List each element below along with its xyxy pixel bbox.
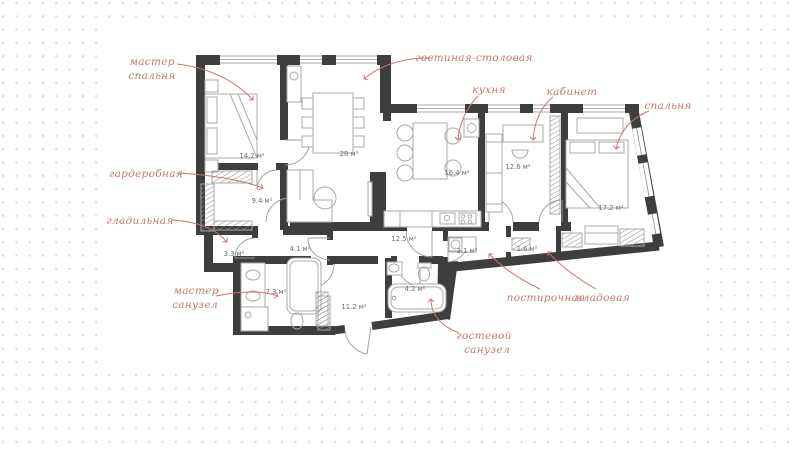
area-hallway: 12.5 м² bbox=[391, 235, 416, 243]
area-laundry: 3.1 м² bbox=[457, 247, 478, 255]
area-entry-hall: 11.2 м² bbox=[341, 303, 366, 311]
label-ironing: гладильная bbox=[106, 215, 173, 227]
area-living-dining: 28 м² bbox=[340, 150, 359, 158]
area-wardrobe: 9.4 м² bbox=[252, 197, 273, 205]
floor-plan: 14.2 м² 28 м² 16.4 м² 12.6 м² 17.2 м² 9.… bbox=[0, 0, 800, 449]
label-master-bedroom-line2: спальня bbox=[128, 70, 175, 82]
area-storage: 1.6 м² bbox=[517, 245, 538, 253]
label-guest-bath-line2: санузел bbox=[464, 344, 510, 356]
area-kitchen: 16.4 м² bbox=[444, 169, 469, 177]
label-living-dining: гостиная-столовая bbox=[415, 52, 533, 64]
area-master-bedroom: 14.2 м² bbox=[239, 152, 264, 160]
area-master-bath: 7.3 м² bbox=[266, 288, 287, 296]
label-master-bedroom-line1: мастер bbox=[129, 56, 175, 68]
label-office: кабинет bbox=[547, 86, 598, 98]
floor-plan-page: 14.2 м² 28 м² 16.4 м² 12.6 м² 17.2 м² 9.… bbox=[0, 0, 800, 449]
label-master-bath-line2: санузел bbox=[172, 299, 218, 311]
label-guest-bath-line1: гостевой bbox=[456, 330, 511, 342]
label-wardrobe: гардеробная bbox=[109, 168, 183, 180]
area-bedroom: 17.2 м² bbox=[598, 204, 623, 212]
label-laundry: постирочная bbox=[507, 292, 586, 304]
label-kitchen: кухня bbox=[472, 84, 506, 96]
area-office: 12.6 м² bbox=[505, 163, 530, 171]
label-bedroom: спальня bbox=[644, 100, 691, 112]
area-guest-bath: 4.2 м² bbox=[405, 285, 426, 293]
label-master-bath-line1: мастер bbox=[173, 285, 219, 297]
area-inner-hall: 4.1 м² bbox=[290, 245, 311, 253]
area-ironing: 3.3 м² bbox=[224, 250, 245, 258]
label-storage: кладовая bbox=[576, 292, 630, 304]
